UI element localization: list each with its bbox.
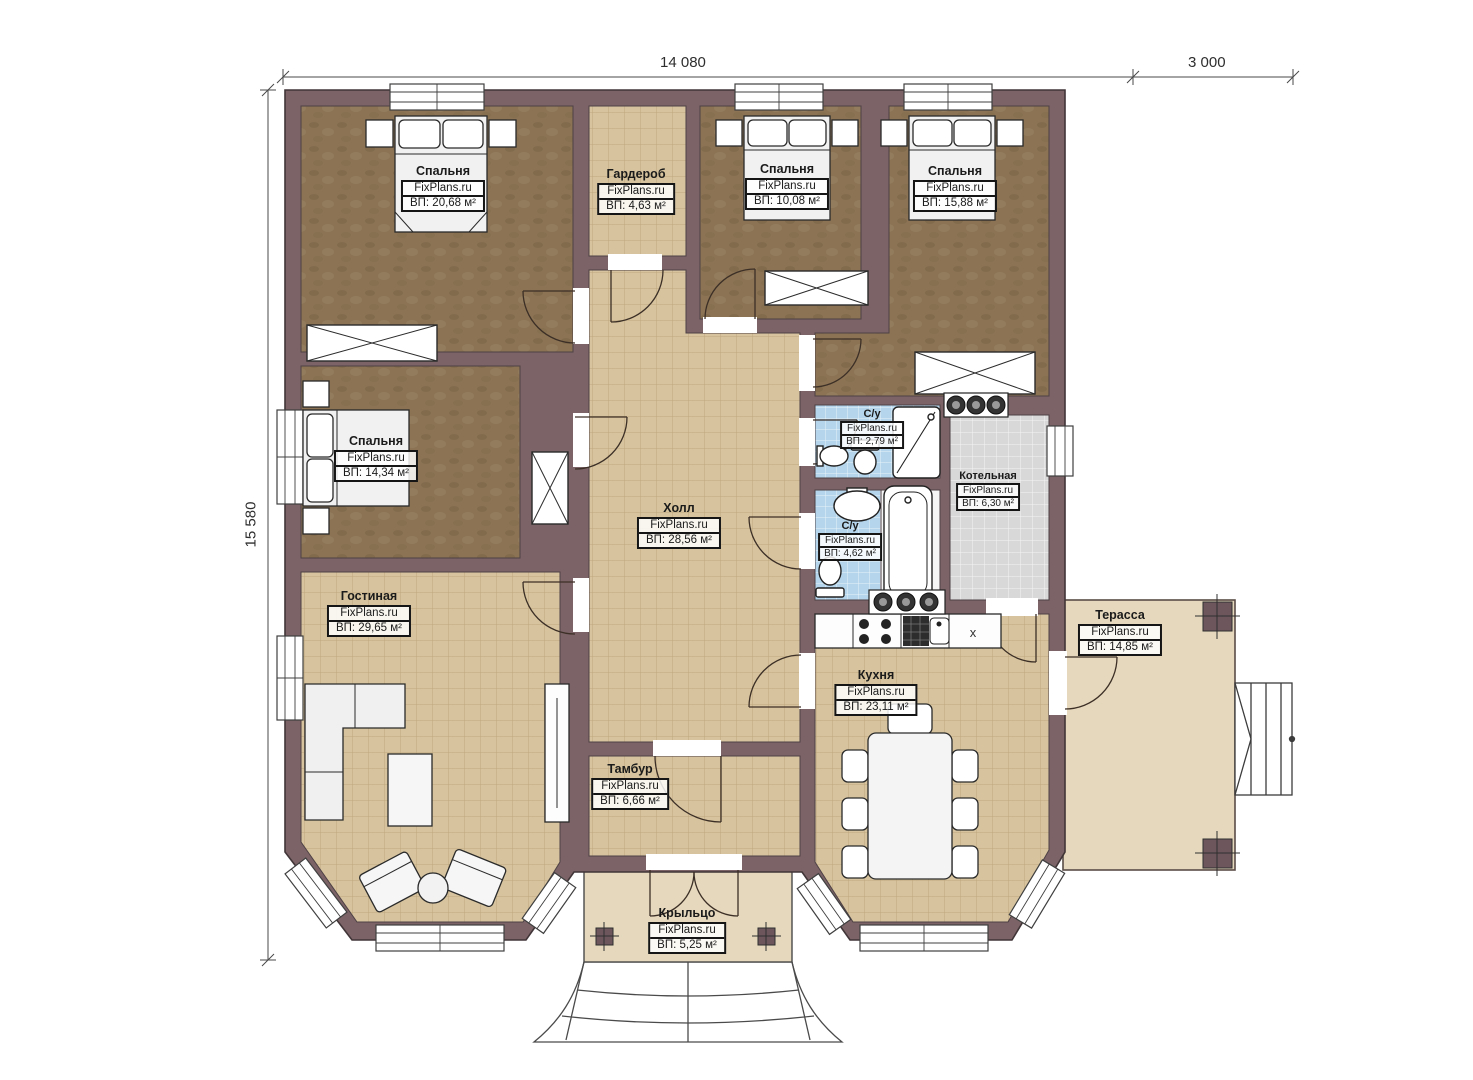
bathtub [884,486,932,602]
room-label-vestibule: Тамбур FixPlans.ru ВП: 6,66 м² [591,762,669,810]
closet-bedroom-1 [307,325,437,361]
floor-plan-svg: x [0,0,1473,1080]
toilet-bath-bottom [816,557,844,597]
room-label-porch: Крыльцо FixPlans.ru ВП: 5,25 м² [648,906,726,954]
closet-bedroom-2 [765,271,868,305]
room-label-bedroom-2: Спальня FixPlans.ru ВП: 10,08 м² [745,162,829,210]
room-label-bath-top: С/у FixPlans.ru ВП: 2,79 м² [840,408,904,449]
window-bedroom-3 [904,84,992,110]
counter-x-unit: x [970,625,977,640]
dimension-width-main: 14 080 [660,54,706,71]
room-label-terrace: Терасса FixPlans.ru ВП: 14,85 м² [1078,608,1162,656]
hob-unit [869,590,945,614]
room-label-bedroom-4: Спальня FixPlans.ru ВП: 14,34 м² [334,434,418,482]
room-label-bath-bottom: С/у FixPlans.ru ВП: 4,62 м² [818,520,882,561]
room-label-living: Гостиная FixPlans.ru ВП: 29,65 м² [327,589,411,637]
floor-plan-page: x 14 080 3 000 15 580 Спальня FixPlans.r… [0,0,1473,1080]
side-table [418,873,448,903]
boiler-unit [944,393,1008,417]
sink-bath-top [817,446,848,466]
kitchen-sink [903,616,949,646]
terrace-stair [1235,683,1295,795]
window-bay-right-bottom [860,925,988,951]
room-label-wardrobe: Гардероб FixPlans.ru ВП: 4,63 м² [597,167,675,215]
dimension-height: 15 580 [242,502,259,548]
coffee-table [388,754,432,826]
window-bedroom-4 [277,410,303,504]
window-bay-left-bottom [376,925,504,951]
dimension-width-terrace: 3 000 [1188,54,1226,71]
closet-bedroom-3 [915,352,1035,394]
room-label-hall: Холл FixPlans.ru ВП: 28,56 м² [637,501,721,549]
room-label-bedroom-1: Спальня FixPlans.ru ВП: 20,68 м² [401,164,485,212]
dining-table [868,733,952,879]
tv-stand [545,684,569,822]
window-bedroom-1 [390,84,484,110]
room-label-kitchen: Кухня FixPlans.ru ВП: 23,11 м² [834,668,917,716]
porch-steps [534,962,842,1042]
window-boiler [1047,426,1073,476]
closet-hall-niche [532,452,568,524]
room-label-boiler: Котельная FixPlans.ru ВП: 6,30 м² [956,470,1020,511]
window-living [277,636,303,720]
room-label-bedroom-3: Спальня FixPlans.ru ВП: 15,88 м² [913,164,997,212]
window-bedroom-2 [735,84,823,110]
